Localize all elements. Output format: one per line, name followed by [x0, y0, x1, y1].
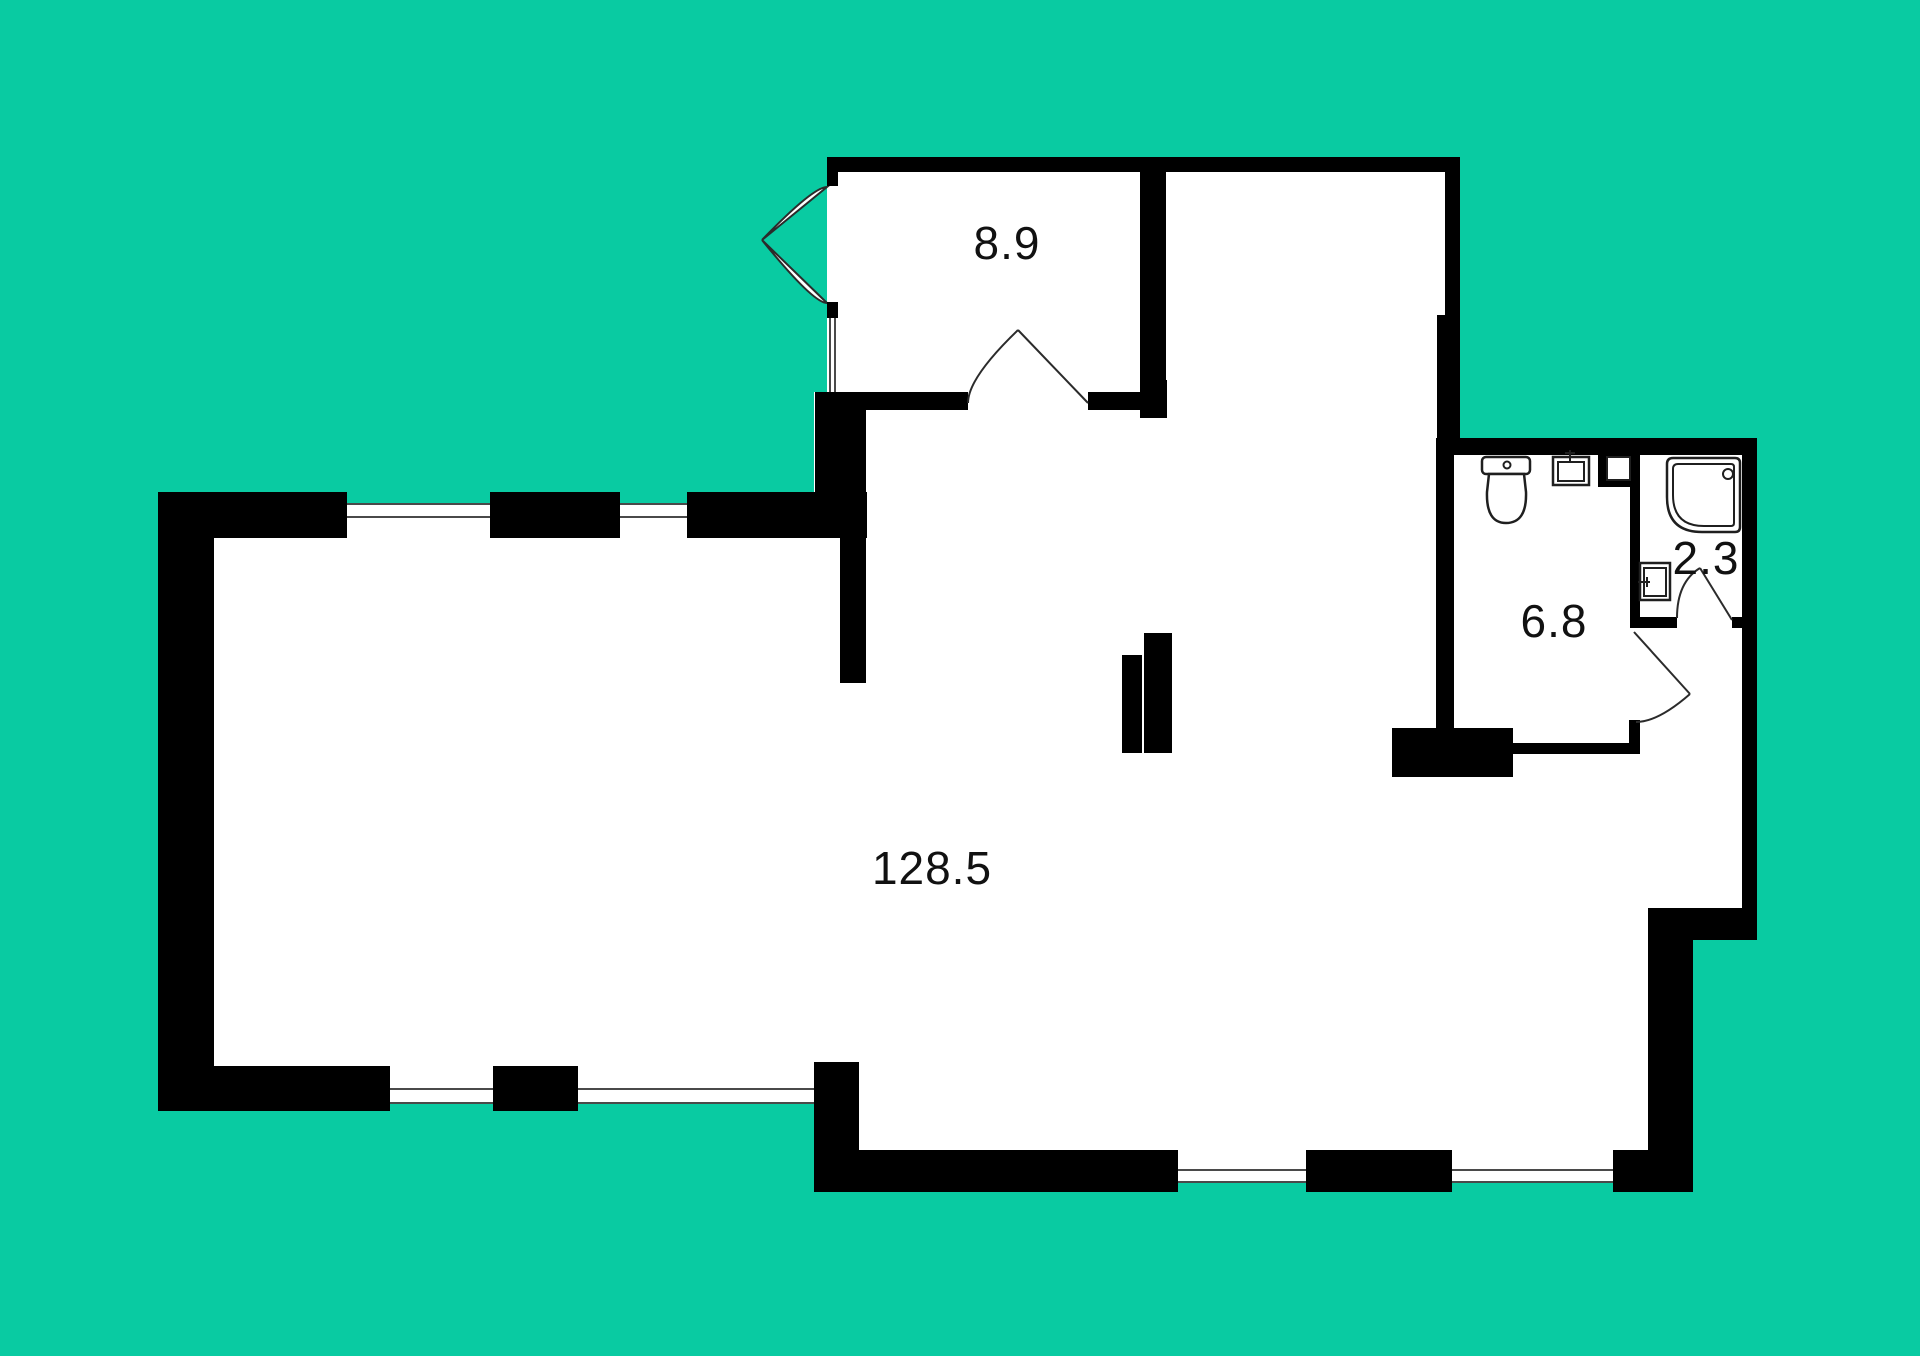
wall-bath-pier — [1392, 728, 1513, 777]
wall-hall-west-stub — [840, 538, 866, 683]
wall-shower-stub — [1630, 617, 1677, 628]
wall-room89-corner — [1142, 380, 1167, 418]
wall-bay-top-2 — [490, 492, 620, 538]
wall-bay-top-3 — [687, 492, 867, 538]
window-room89-left — [827, 318, 838, 392]
wall-bath-bottom — [1513, 743, 1630, 754]
wall-bay-bottom-2 — [493, 1066, 578, 1111]
window-bottom-2 — [1452, 1150, 1613, 1183]
window-bay-top-2 — [620, 503, 687, 538]
wall-bottom-1 — [859, 1150, 1178, 1192]
room-label-top-room: 8.9 — [974, 217, 1041, 269]
room-label-bathroom: 6.8 — [1521, 595, 1588, 647]
wall-bottom-2 — [1306, 1150, 1452, 1192]
wall-balcony-jamb-top — [827, 157, 838, 186]
shower-tray-icon — [1667, 458, 1740, 532]
wall-right-step — [1648, 908, 1757, 940]
wall-left — [158, 492, 214, 1066]
wall-bay-bottom-1 — [158, 1066, 390, 1111]
window-bay-bottom-2 — [578, 1066, 814, 1104]
wall-shower-door-jamb — [1732, 617, 1742, 628]
floor-left-bay — [158, 520, 867, 1066]
window-bottom-1 — [1178, 1150, 1306, 1183]
column-right — [1144, 633, 1172, 753]
wall-bay-connector — [814, 1062, 859, 1192]
wall-room89-bottom-right — [1088, 392, 1142, 410]
wall-bath-top — [1436, 438, 1757, 455]
wall-right-upper — [1742, 455, 1757, 908]
balcony-door-swing — [762, 187, 827, 240]
room-label-shower-room: 2.3 — [1673, 532, 1740, 584]
floor-top-room — [827, 157, 1167, 418]
floorplan-svg: 8.9 128.5 6.8 2.3 — [0, 0, 1920, 1356]
wall-top-right-upper — [1445, 172, 1460, 315]
column-left — [1122, 655, 1142, 753]
floorplan-canvas: 8.9 128.5 6.8 2.3 — [0, 0, 1920, 1356]
duct-shaft-icon — [1607, 457, 1630, 480]
wall-balcony-jamb-bottom — [827, 302, 838, 318]
wall-bath-door-jamb — [1629, 720, 1640, 754]
small-washbasin-icon — [1638, 563, 1670, 600]
wall-top-right-lower — [1437, 315, 1460, 438]
floor-areas — [158, 157, 1757, 1152]
window-bay-bottom-1 — [390, 1066, 493, 1104]
room-label-living: 128.5 — [872, 842, 992, 894]
wall-bath-left — [1436, 455, 1454, 728]
wall-top — [827, 157, 1460, 172]
window-bay-top-1 — [347, 503, 490, 538]
balcony-door-leaf-swing — [762, 240, 827, 303]
floor-main-center — [814, 392, 1460, 1152]
toilet-icon — [1482, 457, 1530, 523]
wall-bottom-corner — [1613, 1150, 1693, 1192]
